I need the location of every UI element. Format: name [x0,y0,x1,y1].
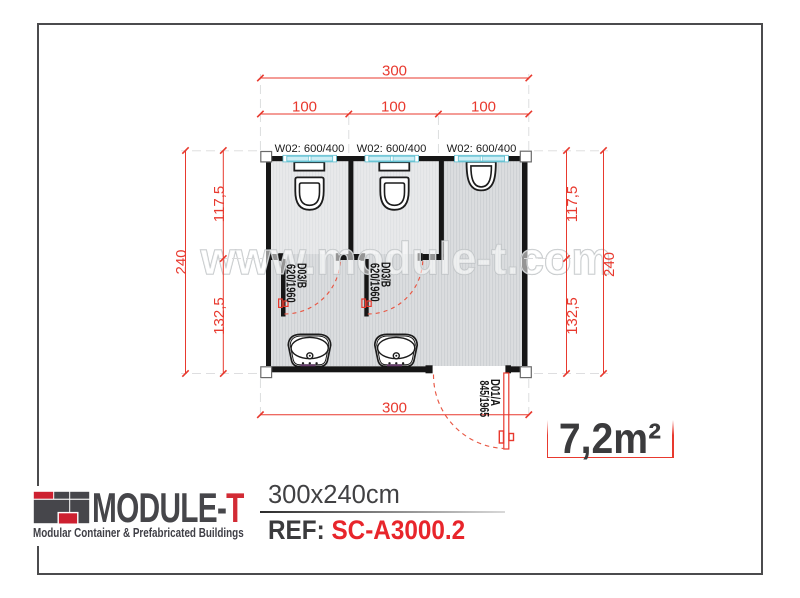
svg-text:132,5: 132,5 [564,297,581,335]
svg-text:845/1965: 845/1965 [477,381,492,418]
svg-text:240: 240 [601,252,618,277]
svg-text:620/1960: 620/1960 [284,264,299,303]
svg-text:620/1960: 620/1960 [368,263,383,302]
svg-text:117,5: 117,5 [211,186,228,222]
svg-text:132,5: 132,5 [211,297,228,335]
svg-text:100: 100 [381,99,406,116]
svg-text:W02: 600/400: W02: 600/400 [275,143,345,155]
svg-text:300: 300 [382,63,407,80]
svg-text:W02: 600/400: W02: 600/400 [357,143,427,155]
svg-text:117,5: 117,5 [564,186,581,222]
svg-text:100: 100 [292,99,317,116]
svg-text:W02: 600/400: W02: 600/400 [447,143,517,155]
svg-text:300: 300 [382,400,407,417]
svg-text:240: 240 [173,249,190,274]
svg-text:100: 100 [471,99,496,116]
